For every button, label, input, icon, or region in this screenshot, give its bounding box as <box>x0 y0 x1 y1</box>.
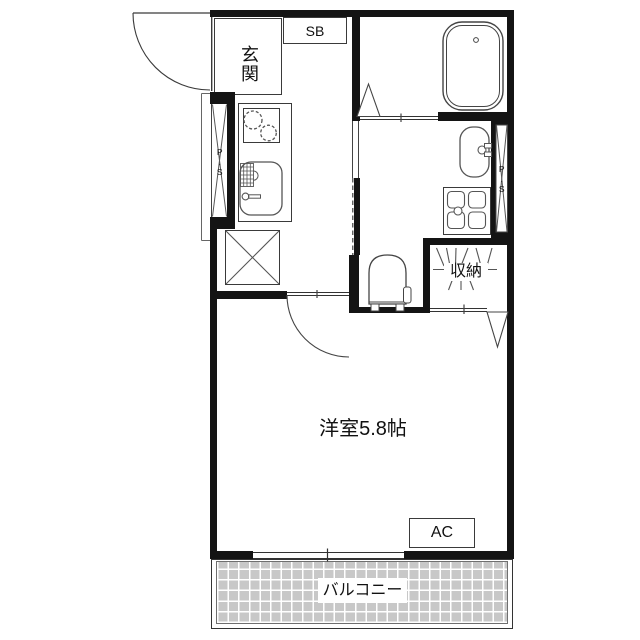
plan-linework <box>0 0 640 640</box>
shoe-box-label: SB <box>283 17 347 44</box>
room-door-icon <box>287 290 349 357</box>
closet-label: 収納 <box>444 263 488 281</box>
refrigerator-x-icon <box>226 231 279 284</box>
bath-folding-door-icon <box>357 84 401 122</box>
entrance-label: 玄関 <box>238 43 260 85</box>
ps-left-outer-line <box>202 94 211 241</box>
bathtub-icon <box>443 22 503 110</box>
kitchen-sink-icon <box>240 162 282 215</box>
toilet-icon <box>369 255 411 311</box>
washbasin-icon <box>460 127 492 177</box>
main-room-label: 洋室5.8帖 <box>303 418 423 440</box>
pipe-space-right-label: P.S <box>495 157 508 201</box>
floor-plan: 玄関 SB P.S P.S 収納 洋室5.8帖 AC バルコニー <box>0 0 640 640</box>
stove-burners-icon <box>244 111 276 141</box>
balcony-label: バルコニー <box>318 578 407 603</box>
washing-machine-pan-icon <box>448 192 486 229</box>
pipe-space-left-label: P.S <box>212 140 227 184</box>
entrance-door-icon <box>133 13 212 91</box>
ac-label: AC <box>409 518 475 548</box>
closet-folding-door-icon <box>464 305 508 348</box>
